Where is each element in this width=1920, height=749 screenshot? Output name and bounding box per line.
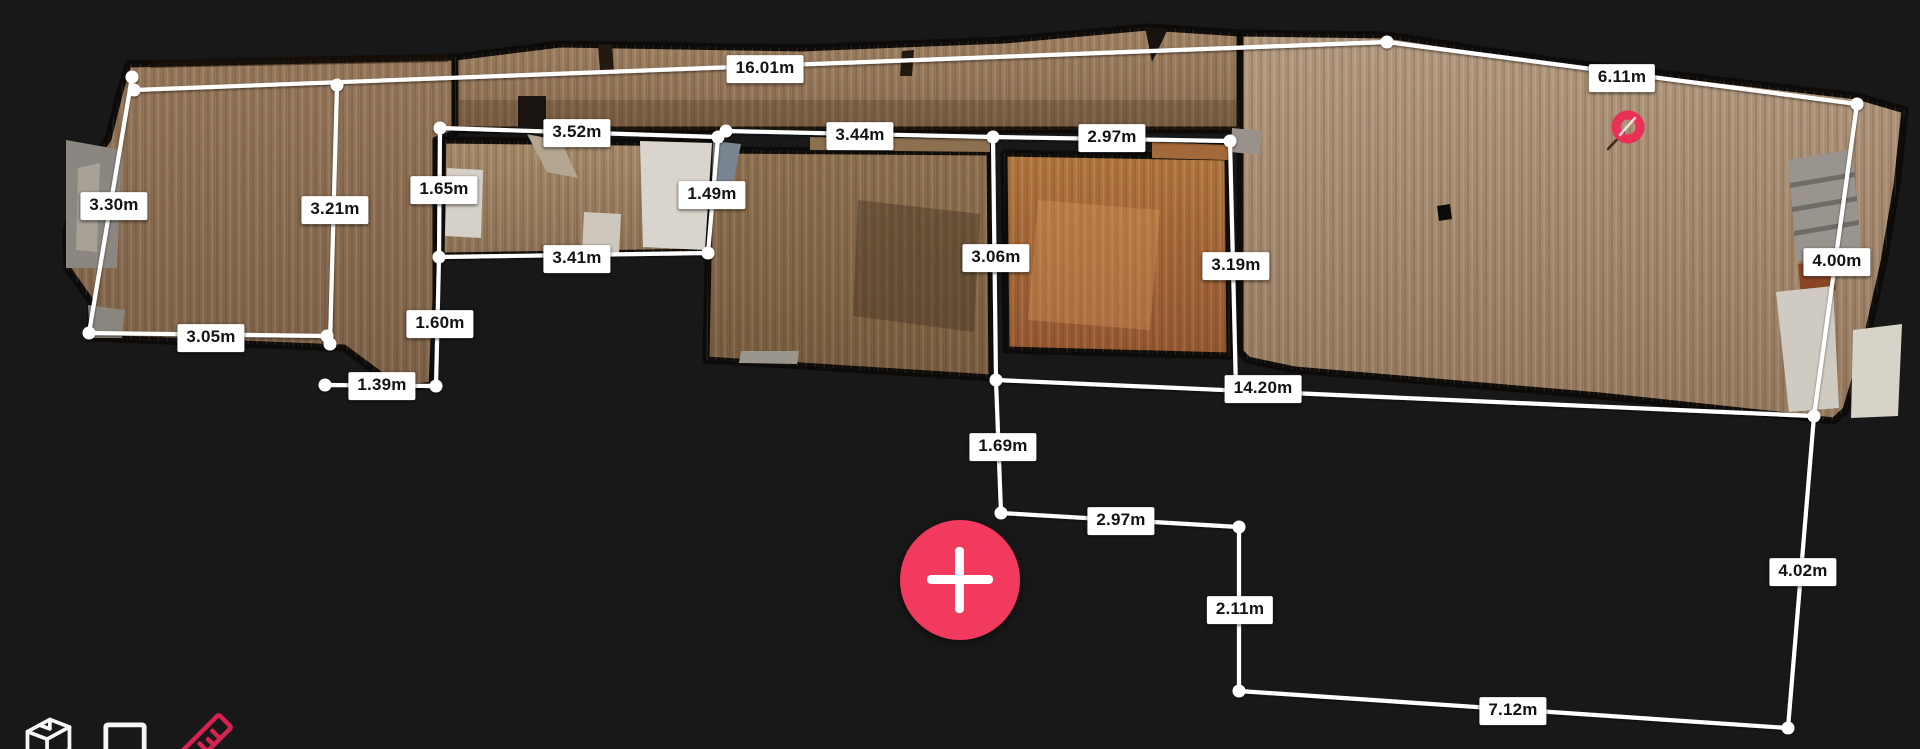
measurement-label[interactable]: 14.20m	[1225, 375, 1302, 403]
measurement-label[interactable]: 3.05m	[177, 324, 244, 352]
measurement-vertex[interactable]	[720, 125, 733, 138]
floorplan-square-icon	[102, 721, 148, 749]
measurement-label[interactable]: 3.30m	[80, 192, 147, 220]
measurement-vertex[interactable]	[126, 71, 139, 84]
measurement-label[interactable]: 1.39m	[348, 372, 415, 400]
measurement-label[interactable]: 3.52m	[543, 119, 610, 147]
measurement-label[interactable]: 3.41m	[543, 245, 610, 273]
measurement-label[interactable]: 2.97m	[1078, 124, 1145, 152]
dollhouse-icon	[20, 714, 76, 749]
detail-room-b-threshold	[739, 351, 799, 364]
detail-right-room-hole	[1437, 204, 1452, 221]
add-measurement-button[interactable]	[900, 520, 1020, 640]
measurement-label[interactable]: 3.44m	[826, 122, 893, 150]
floorplan-view-button[interactable]	[102, 721, 148, 749]
measurement-vertex[interactable]	[430, 380, 443, 393]
measurement-label[interactable]: 1.69m	[969, 433, 1036, 461]
measurement-vertex[interactable]	[995, 507, 1008, 520]
measurement-vertex[interactable]	[1233, 685, 1246, 698]
detail-band-notch-1	[598, 44, 614, 72]
measurement-vertex[interactable]	[433, 251, 446, 264]
measurement-vertex[interactable]	[1381, 36, 1394, 49]
measurement-label[interactable]: 1.49m	[678, 181, 745, 209]
measurement-vertex[interactable]	[702, 247, 715, 260]
ruler-icon	[174, 708, 238, 749]
measurement-label[interactable]: 3.06m	[962, 244, 1029, 272]
dollhouse-view-button[interactable]	[20, 714, 76, 749]
measurement-vertex[interactable]	[987, 131, 1000, 144]
detail-room-c-light-patch	[1028, 200, 1160, 330]
measurement-label[interactable]: 6.11m	[1589, 64, 1655, 92]
measurement-label[interactable]: 16.01m	[727, 55, 804, 83]
measurement-label[interactable]: 4.02m	[1769, 558, 1836, 586]
detail-band-notch-2	[900, 50, 914, 76]
measurement-point-marker[interactable]	[1604, 104, 1652, 152]
measurement-vertex[interactable]	[1808, 410, 1821, 423]
measurement-vertex[interactable]	[1851, 98, 1864, 111]
measurement-label[interactable]: 1.65m	[410, 176, 477, 204]
measurement-vertex[interactable]	[331, 79, 344, 92]
detail-fixture-white-2	[1851, 324, 1902, 418]
measurement-vertex[interactable]	[319, 379, 332, 392]
measurement-label[interactable]: 2.11m	[1207, 596, 1273, 624]
measurement-vertex[interactable]	[990, 374, 1003, 387]
measurement-label[interactable]: 2.97m	[1087, 507, 1154, 535]
wood-grain-overlay	[66, 57, 455, 389]
detail-band-dark-door	[518, 96, 546, 130]
pin-ring-icon	[1604, 104, 1652, 152]
detail-room-b-smudge	[853, 200, 980, 332]
measurement-label[interactable]: 4.00m	[1803, 248, 1870, 276]
floorplan-viewport[interactable]: 16.01m6.11m4.00m4.02m7.12m2.11m2.97m1.69…	[0, 0, 1920, 749]
measurement-vertex[interactable]	[1233, 521, 1246, 534]
measurement-label[interactable]: 3.19m	[1202, 252, 1269, 280]
measurement-label[interactable]: 7.12m	[1479, 697, 1546, 725]
measurement-label[interactable]: 3.21m	[301, 196, 368, 224]
measure-tool-button[interactable]	[174, 708, 238, 749]
measurement-vertex[interactable]	[324, 338, 337, 351]
measurement-vertex[interactable]	[83, 327, 96, 340]
measurement-vertex[interactable]	[434, 122, 447, 135]
measurement-vertex[interactable]	[128, 84, 141, 97]
measurement-label[interactable]: 1.60m	[406, 310, 473, 338]
measurement-vertex[interactable]	[1782, 722, 1795, 735]
plus-icon	[955, 547, 964, 613]
measurement-vertex[interactable]	[1224, 135, 1237, 148]
detail-room-c-bridge	[1152, 142, 1228, 160]
